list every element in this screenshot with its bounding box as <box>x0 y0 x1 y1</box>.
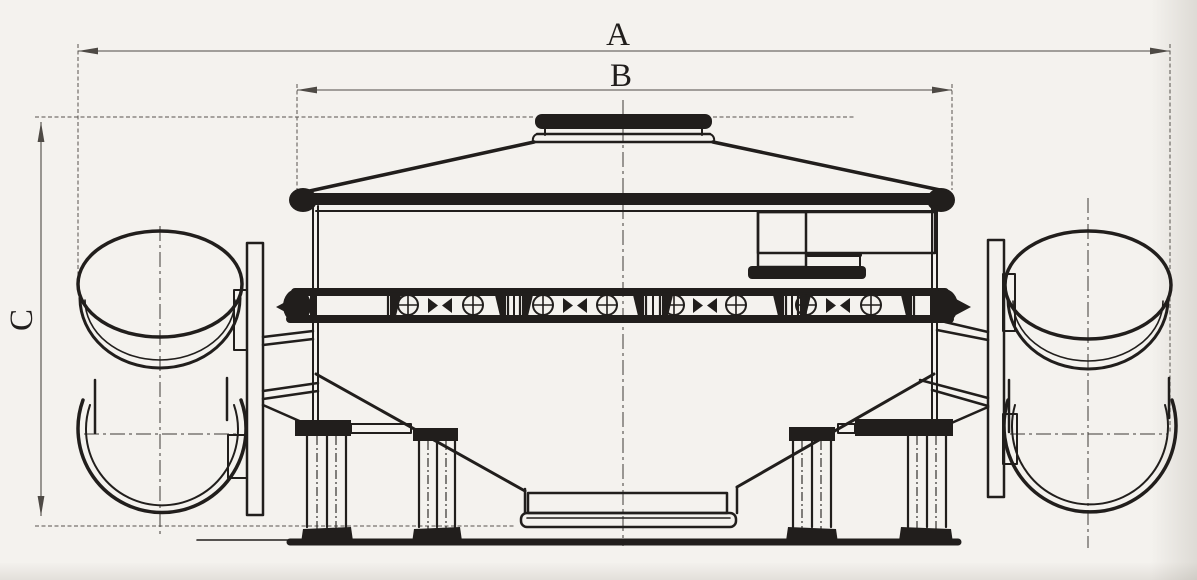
bottom-outlet <box>521 493 736 527</box>
top-cover <box>289 142 955 212</box>
oversize-outlet-box <box>748 212 935 279</box>
arrowhead-c-bottom <box>38 496 45 516</box>
drawing-sheet: A B C <box>0 0 1197 580</box>
left-weight-assembly <box>78 231 318 515</box>
outlet-box-inner <box>758 212 806 267</box>
clamp-wedge <box>901 295 912 316</box>
outlet-spigot <box>528 493 727 513</box>
clamp-wedge <box>707 298 717 313</box>
bolt-icon <box>796 295 816 315</box>
right-leg-plate <box>855 419 953 436</box>
band-wall-tick-left <box>310 293 317 319</box>
clamp-wedge <box>577 298 587 313</box>
arrowhead-c-top <box>38 122 45 142</box>
spring-leg-inner-right <box>786 441 838 543</box>
clamp-wedge <box>693 298 703 313</box>
machine-drawing: A B C <box>0 0 1197 580</box>
arrowhead-b-right <box>932 87 952 94</box>
clamp-wedge <box>428 298 438 313</box>
inlet-flange <box>535 114 712 129</box>
right-mount-plate <box>988 240 1004 497</box>
left-weight-bottom-inner <box>86 405 238 505</box>
dimension-label-a: A <box>606 17 630 53</box>
left-weight-bottom-outer <box>78 400 246 513</box>
right-weight-bottom-inner <box>1012 405 1168 504</box>
clamp-wedge <box>840 298 850 313</box>
clamp-wedge <box>633 295 644 316</box>
band-cap-left-tip <box>276 300 289 314</box>
dimension-label-b: B <box>610 58 632 94</box>
cover-slope-left <box>305 142 534 192</box>
arrowhead-b-left <box>297 87 317 94</box>
clamp-wedge <box>773 295 784 316</box>
right-weight-bottom-outer <box>1004 400 1176 512</box>
bolt-icon <box>533 295 553 315</box>
bolt-icon <box>726 295 746 315</box>
bolt-icon <box>861 295 881 315</box>
bolt-icon <box>664 295 684 315</box>
clamp-wedge <box>563 298 573 313</box>
left-leg-plate-extension <box>351 424 411 433</box>
clamp-band <box>276 289 971 323</box>
left-mount-plate <box>247 243 263 515</box>
left-leg-plate <box>295 420 351 436</box>
dimension-label-c: C <box>4 309 40 331</box>
bolt-icon <box>597 295 617 315</box>
left-inner-spring-cap <box>413 428 458 441</box>
clamp-wedge <box>826 298 836 313</box>
ground <box>197 540 958 542</box>
spring-leg-inner-left <box>412 441 462 543</box>
clamp-wedge <box>495 295 506 316</box>
support-legs <box>295 419 953 543</box>
clamp-wedge <box>442 298 452 313</box>
outlet-flange <box>521 513 736 527</box>
outlet-box-tray <box>748 266 866 279</box>
bolt-icon <box>463 295 483 315</box>
spring-leg-outer-right <box>899 436 953 543</box>
cover-slope-right <box>713 142 940 190</box>
right-inner-spring-cap <box>789 427 835 441</box>
right-weight-assembly <box>920 231 1176 512</box>
band-wall-tick-right <box>930 293 937 319</box>
clamp-wedge <box>522 295 533 316</box>
arrowhead-a-right <box>1150 48 1170 55</box>
arrowhead-a-left <box>78 48 98 55</box>
bolt-icon <box>398 295 418 315</box>
left-bracket-arms <box>263 331 318 427</box>
spring-leg-outer-left <box>301 436 353 543</box>
band-cap-right-tip <box>956 299 971 315</box>
outlet-box-outer <box>758 212 935 253</box>
